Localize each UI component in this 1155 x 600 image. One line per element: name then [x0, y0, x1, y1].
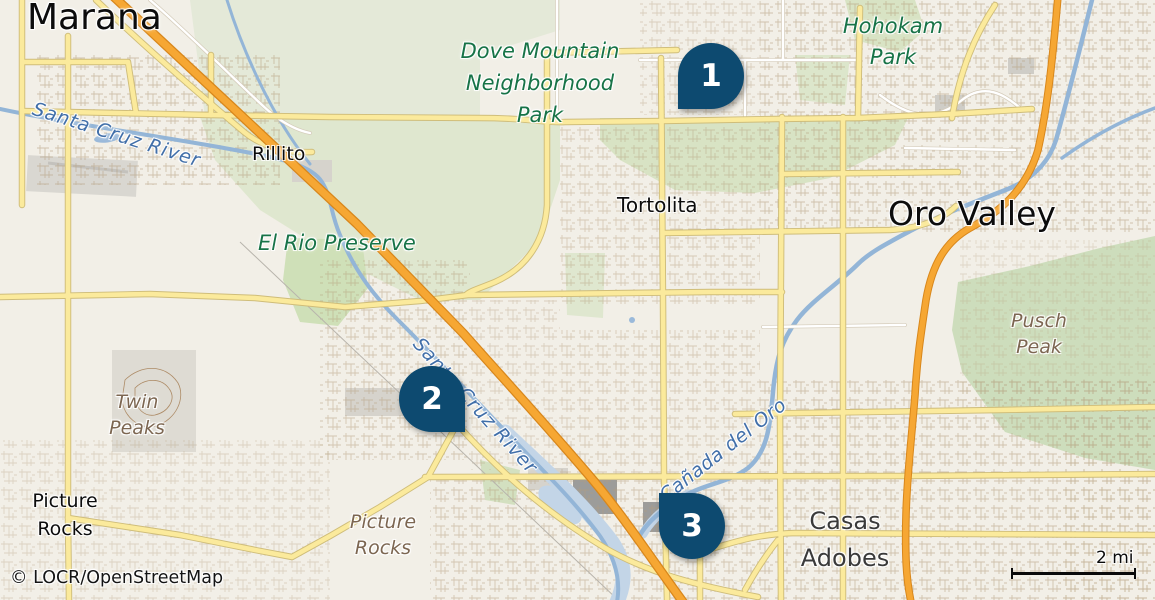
village-label-picture-rocks: Picture Rocks — [32, 487, 97, 543]
marker-2-number: 2 — [421, 381, 443, 417]
hohokam-line1: Hohokam — [843, 11, 943, 42]
dove-mountain-line2: Neighborhood — [461, 67, 620, 99]
scale-bar — [1011, 568, 1136, 579]
map-marker-2[interactable]: 2 — [399, 366, 465, 432]
city-label-oro-valley: Oro Valley — [888, 195, 1056, 233]
map-marker-3[interactable]: 3 — [659, 493, 725, 559]
peak-label-pusch-peak: Pusch Peak — [1011, 308, 1067, 360]
park-label-el-rio: El Rio Preserve — [258, 231, 416, 255]
hohokam-line2: Park — [843, 42, 943, 73]
picture-rocks-line2: Rocks — [32, 515, 97, 543]
village-label-tortolita: Tortolita — [617, 194, 698, 217]
casas-adobes-line2: Adobes — [801, 540, 889, 577]
scale-label: 2 mi — [1096, 549, 1134, 569]
picture-rocks-line1: Picture — [32, 487, 97, 515]
map-canvas: Marana Oro Valley Rillito Tortolita Pict… — [0, 0, 1155, 600]
city-label-marana: Marana — [27, 0, 162, 38]
suburb-label-casas-adobes: Casas Adobes — [801, 503, 889, 577]
casas-adobes-line1: Casas — [801, 503, 889, 540]
pusch-peak-line2: Peak — [1011, 334, 1067, 360]
pusch-peak-line1: Pusch — [1011, 308, 1067, 334]
wash-label-picture-rocks: Picture Rocks — [350, 509, 416, 561]
dove-mountain-line1: Dove Mountain — [461, 35, 620, 67]
twin-peaks-line1: Twin — [109, 389, 165, 415]
park-label-hohokam: Hohokam Park — [843, 11, 943, 73]
peak-label-twin-peaks: Twin Peaks — [109, 389, 165, 441]
marker-3-number: 3 — [681, 508, 703, 544]
map-marker-1[interactable]: 1 — [678, 43, 744, 109]
park-label-dove-mountain: Dove Mountain Neighborhood Park — [461, 35, 620, 131]
map-attribution: © LOCR/OpenStreetMap — [10, 568, 223, 588]
twin-peaks-line2: Peaks — [109, 415, 165, 441]
village-label-rillito: Rillito — [252, 144, 305, 166]
dove-mountain-line3: Park — [461, 99, 620, 131]
picture-rocks-wash-line2: Rocks — [350, 535, 416, 561]
marker-1-number: 1 — [700, 58, 722, 94]
picture-rocks-wash-line1: Picture — [350, 509, 416, 535]
